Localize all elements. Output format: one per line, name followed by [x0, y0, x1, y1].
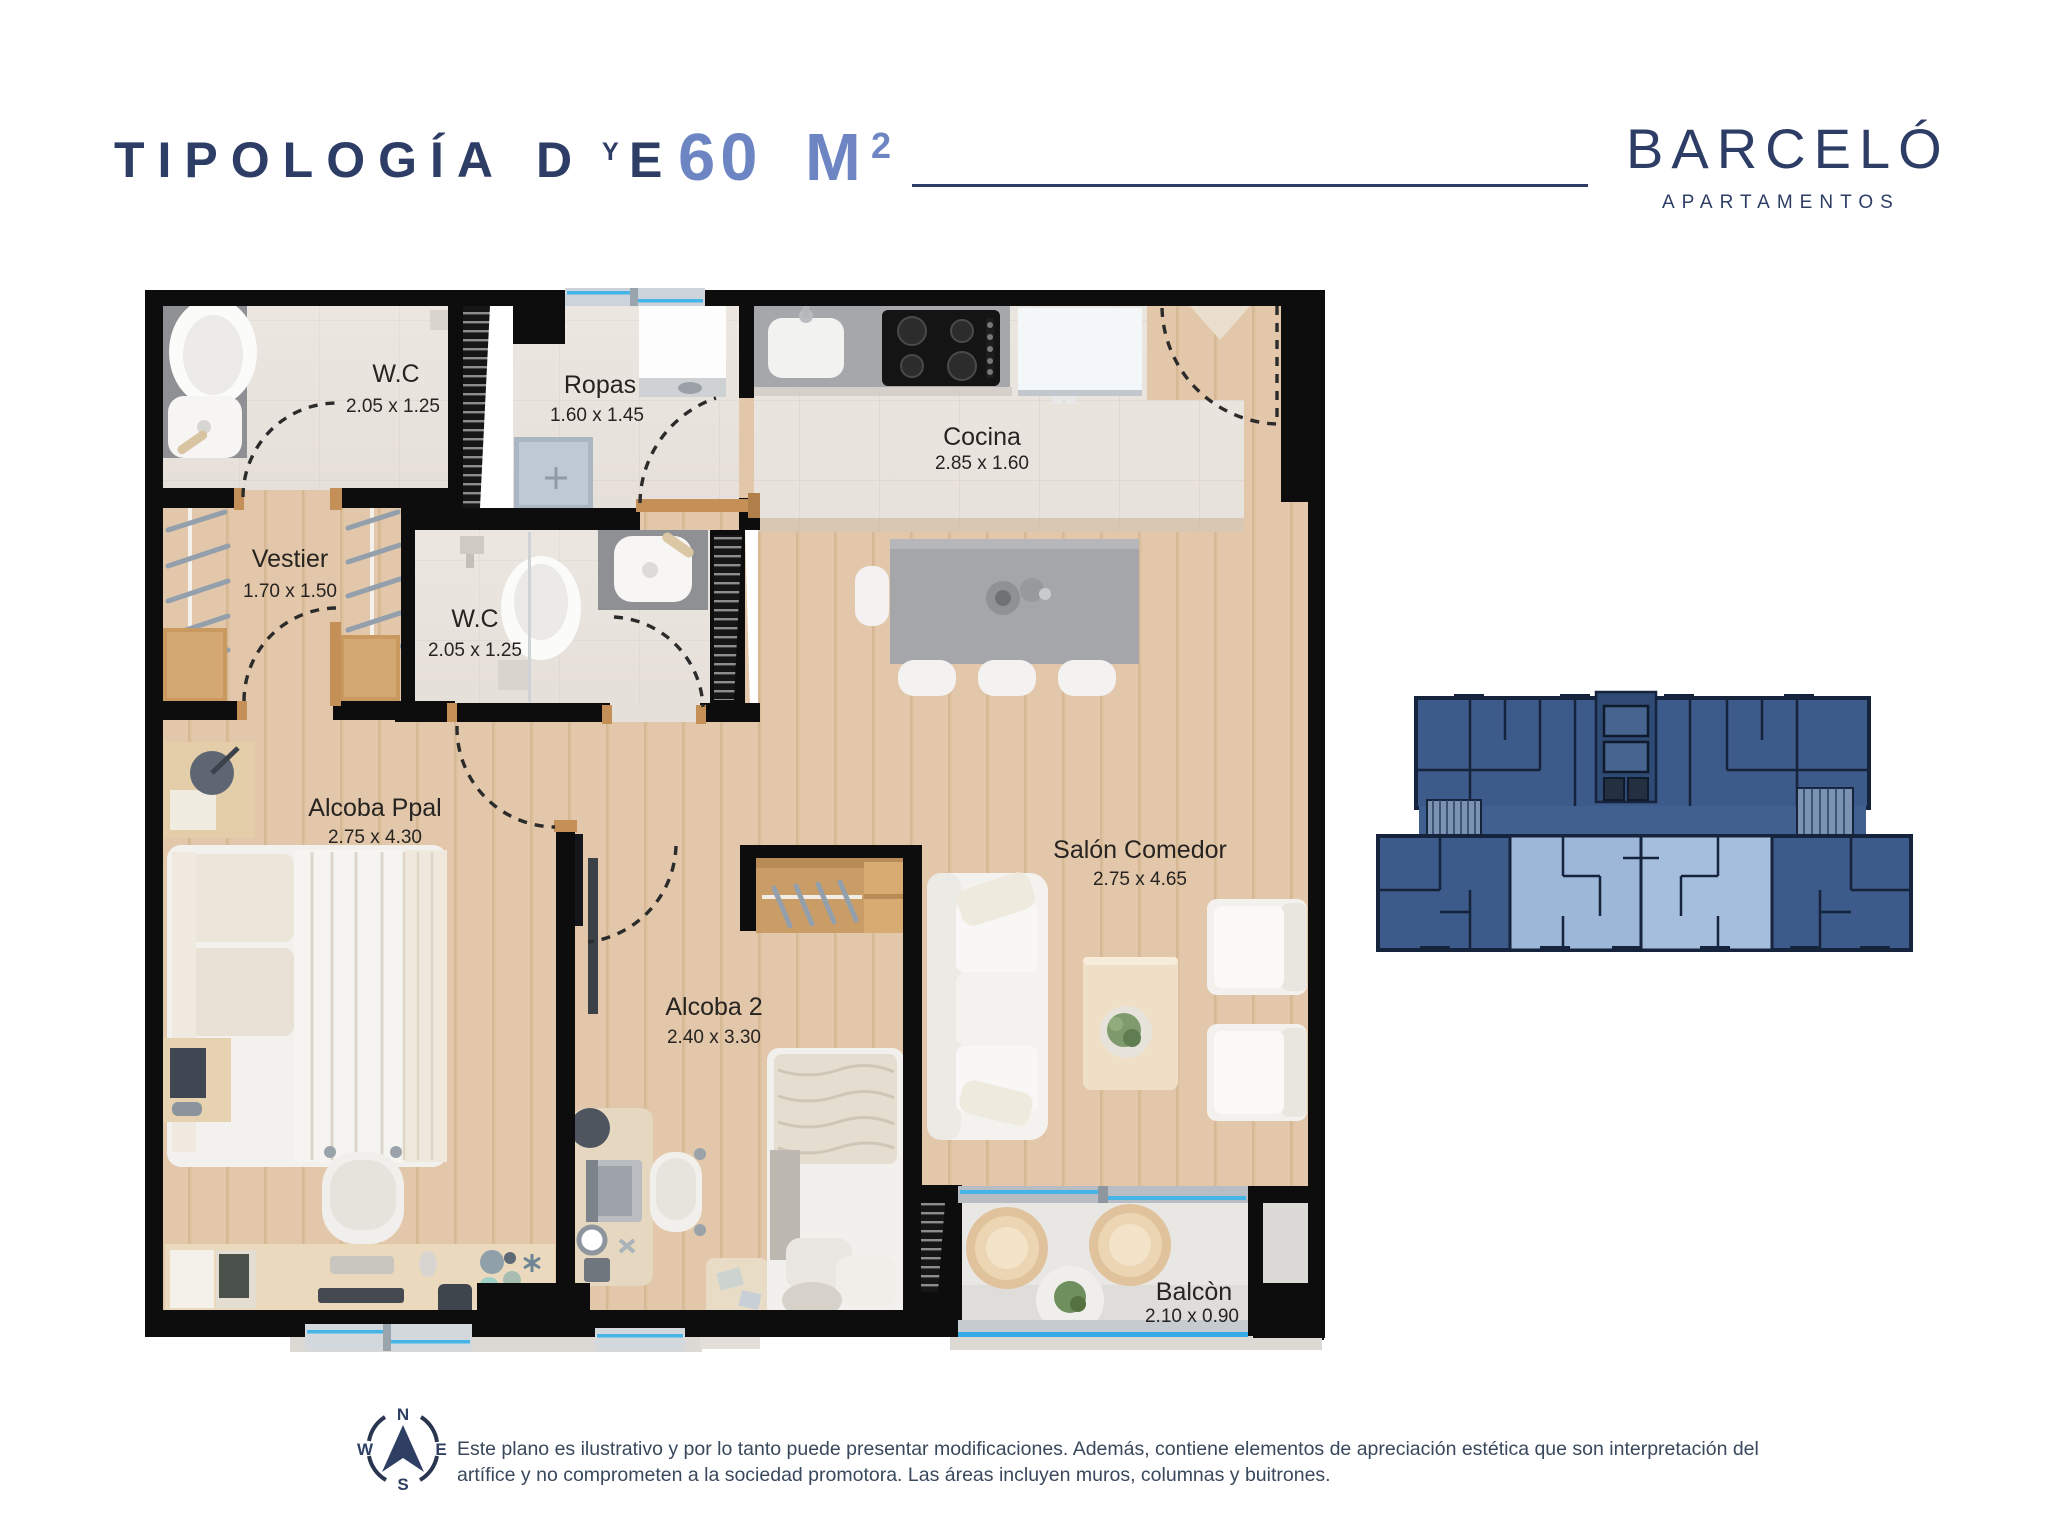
svg-text:W.C: W.C: [451, 605, 498, 633]
svg-text:2.40 x 3.30: 2.40 x 3.30: [667, 1027, 761, 1048]
svg-text:Salón Comedor: Salón Comedor: [1053, 836, 1227, 864]
svg-text:W: W: [357, 1440, 374, 1459]
svg-text:Vestier: Vestier: [252, 545, 328, 573]
svg-text:2.75 x 4.30: 2.75 x 4.30: [328, 827, 422, 848]
svg-text:E: E: [435, 1440, 446, 1459]
svg-text:2.75 x 4.65: 2.75 x 4.65: [1093, 869, 1187, 890]
svg-text:1.60 x 1.45: 1.60 x 1.45: [550, 405, 644, 426]
svg-text:Ropas: Ropas: [564, 371, 636, 399]
svg-text:S: S: [397, 1475, 408, 1494]
svg-text:2.10 x 0.90: 2.10 x 0.90: [1145, 1306, 1239, 1327]
svg-text:N: N: [397, 1405, 409, 1424]
svg-text:Alcoba 2: Alcoba 2: [665, 993, 762, 1021]
svg-text:W.C: W.C: [372, 360, 419, 388]
svg-text:2.05 x 1.25: 2.05 x 1.25: [428, 640, 522, 661]
svg-text:2.85 x 1.60: 2.85 x 1.60: [935, 453, 1029, 474]
svg-text:Balcòn: Balcòn: [1156, 1278, 1232, 1306]
svg-text:Alcoba Ppal: Alcoba Ppal: [308, 794, 441, 822]
svg-text:Cocina: Cocina: [943, 423, 1021, 451]
svg-text:1.70 x 1.50: 1.70 x 1.50: [243, 581, 337, 602]
svg-text:2.05 x 1.25: 2.05 x 1.25: [346, 396, 440, 417]
